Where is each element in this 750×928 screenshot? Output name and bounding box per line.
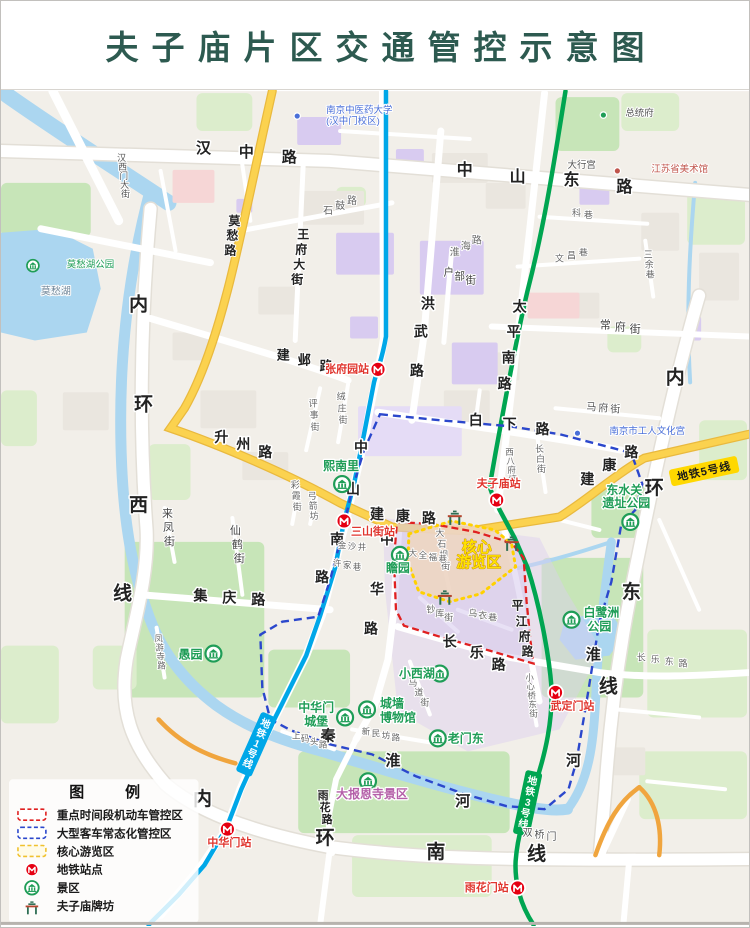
road-label: 路 [536,421,551,437]
scenic-icon-col [370,781,372,785]
road-label: 福 [429,552,437,562]
road-label: 街 [630,321,641,335]
scenic-icon-col [31,887,32,890]
road-label: 来 [162,507,173,520]
archway-cap [443,590,447,592]
metro-station-icon [371,362,386,377]
poi-label: (汉中门校区) [326,115,380,127]
metro-station-icon [26,863,39,876]
road-label: 路 [347,194,357,207]
road-label: 街 [537,463,546,474]
scenic-spot-icon [563,612,579,628]
poi-label: 莫愁湖公园 [67,259,114,271]
poi-label: 江苏省美术馆 [651,163,708,175]
road-label: 路 [251,592,266,608]
road-label: 华 [370,581,384,597]
scenic-label: 老门东 [448,730,484,745]
archway-tier [441,593,449,595]
scenic-icon-base [567,623,577,624]
metro-station-icon [220,822,235,837]
archway-beam [26,906,39,908]
water-body [1,229,101,341]
scenic-label: 中华门 [298,699,334,714]
legend-zone-swatch [18,809,46,820]
metro-station-label: 武定门站 [551,698,595,712]
road-label: 路 [492,657,507,673]
road-label: 民 [372,728,380,738]
road-label: 衣 [478,610,487,621]
road-label: 库 [435,608,444,619]
road-label: 白 [469,412,483,428]
road-label: 白 [536,453,545,464]
road-label: 建 [277,347,290,362]
traffic-control-map: 地铁5号线地铁1号线地铁3号线汉中路中山东路内环西线内环东线内环南线洪武路太平南… [1,90,749,926]
road-label: 建 [580,471,594,487]
road-label: 建 [370,506,384,522]
metro-station-label: 中华门站 [207,835,251,849]
road-label: 坊 [310,510,319,521]
road-label: 评 [309,398,318,408]
scenic-icon-col [367,781,369,785]
core-zone-label: 游览区 [456,553,501,571]
road-label: 三 [644,250,653,260]
scenic-label: 遗址公园 [601,495,650,510]
road-label: 街 [339,414,348,425]
road-label: 路 [410,362,425,378]
scenic-icon-col [363,709,365,713]
road-label: 东 [563,170,579,189]
road-label: 大 [409,548,418,558]
scenic-icon-col [440,738,442,742]
archway-beam [438,595,452,597]
road-label: 事 [310,409,319,420]
road-label: 巷 [353,562,362,572]
road-label: 愁 [226,228,238,243]
city-block [486,183,526,209]
road-label: 路 [472,234,482,247]
archway-post [449,517,451,525]
scenic-icon-col [437,738,439,742]
park-area [1,390,37,446]
road-label: 内 [666,365,685,388]
scenic-icon-col [347,717,349,721]
archway-tier [451,513,459,515]
road-label: 仙 [230,524,241,537]
road-label: 平 [507,323,521,339]
road-label: 凤 [163,521,174,534]
road-label: 街 [420,696,429,707]
poi-dot-icon [294,113,300,119]
scenic-icon-col [571,619,573,623]
metro-station-label: 三山街站 [351,524,395,538]
scenic-label: 白鹭洲 [583,605,619,620]
road-label: 康 [602,457,617,473]
archway-post [515,543,517,551]
legend-item-label: 景区 [56,882,80,895]
scenic-icon-col [341,717,343,721]
road-label: 街 [234,551,245,565]
road-label: 街 [444,612,453,623]
legend-title: 例 [125,783,140,801]
scenic-icon-col [439,673,441,677]
road-label: 长 [443,634,457,650]
road-label: 洪 [421,296,435,312]
scenic-icon-base [28,891,36,892]
archway-post [448,597,450,605]
road-label: 中 [239,143,254,161]
legend-item: 重点时间段机动车管控区 [18,808,183,822]
road-label: 石 [323,206,333,217]
scenic-icon-col [369,709,371,713]
poi-label: 南京中医药大学 [326,104,392,116]
road-label: 井 [358,542,366,552]
scenic-icon-col [209,653,211,657]
road-label: 乌 [468,608,477,619]
poi-dot-icon [600,112,606,118]
scenic-icon-col [34,887,35,890]
scenic-label: 城墙 [380,695,404,710]
road-label: 许 [333,558,342,568]
archway-post [35,907,37,914]
park-area [1,646,59,724]
scenic-icon-base [337,488,347,489]
road-label: 鼓 [335,199,345,212]
scenic-icon-col [216,653,218,657]
poi-dot-icon [574,430,580,436]
road-label: 路 [392,732,401,742]
scenic-icon-base [395,558,405,559]
road-label: 内 [129,293,148,316]
archway-cap [510,537,514,539]
city-block [200,390,256,428]
road-label: 双 [523,827,533,839]
road-label: 环 [134,394,153,415]
road-label: 马 [586,401,596,413]
road-label: 街 [529,708,538,718]
poi-label: 总统府 [625,107,654,119]
road-label: 长 [637,652,646,663]
legend-item-label: 大型客车常态化管控区 [57,826,172,840]
road-label: 环 [316,828,335,849]
road-label: 路 [224,243,237,258]
road-label: 路 [319,739,328,749]
legend-item-label: 核心游览区 [57,844,115,858]
road-label: 绒 [337,390,346,401]
road-label: 中 [457,160,473,179]
road-label: 全 [419,550,428,560]
road-label: 庆 [221,590,236,606]
road-label: 巷 [488,613,497,623]
road-label: 中 [354,439,368,455]
road-label: 东 [622,580,641,603]
scenic-icon-col [626,521,628,525]
road-label: 淮 [385,751,400,769]
metro-station-label: 雨花门站 [465,880,509,894]
road-label: 府 [598,401,608,414]
scenic-icon-col [344,484,346,488]
road-label: 大 [435,527,444,538]
road-label: 路 [616,177,633,196]
road-label: 升 [214,429,228,445]
scenic-icon-base [29,268,36,269]
archway-post [27,907,29,914]
scenic-icon-col [213,653,215,657]
metro-station-icon [489,493,504,508]
road-label: 线 [527,842,546,865]
scenic-icon-col [344,717,346,721]
road-label: 巷 [439,554,448,564]
road-label: 邺 [298,352,311,367]
road-label: 街 [610,402,620,415]
road-label: 街 [164,534,175,548]
road-label: 文 [555,253,564,264]
road-label: 太 [512,299,528,315]
scenic-label: 愚园 [179,648,203,662]
road-label: 路 [364,621,379,637]
scenic-icon-base [209,657,219,658]
archway-beam [448,515,462,517]
bottom-edge [1,922,749,925]
road-label: 彩 [291,480,300,490]
road-label: 街 [466,274,477,287]
scenic-label: 小西湖 [399,666,435,681]
title-bar: 夫子庙片区交通管控示意图 [1,1,749,89]
scenic-label: 熙南里 [323,458,359,473]
scenic-icon-base [340,721,350,722]
scenic-icon-col [436,673,438,677]
legend-zone-swatch [18,845,46,856]
road-label: 山 [510,168,526,186]
road-label: 南 [426,841,445,863]
road-label: 雨 [318,789,329,802]
metro-station-icon [548,685,563,700]
road-label: 王 [297,228,309,242]
road-label: 花 [320,800,331,814]
road-label: 头 [310,736,318,746]
scenic-label: 瞻园 [386,560,410,575]
road-label: 西 [129,495,148,516]
scenic-icon-col [633,521,635,525]
road-label: 东 [665,656,674,667]
road-label: 部 [455,270,465,283]
archway-tier [28,903,35,905]
road-label: 大 [293,257,305,272]
road-label: 淮 [586,646,601,664]
scenic-icon-col [629,521,631,525]
scenic-icon-col [366,709,368,713]
road-label: 河 [566,751,581,769]
road-label: 南 [502,349,516,365]
commercial-block [452,342,498,384]
archway-beam [505,541,519,543]
road-label: 府 [295,242,307,257]
poi-label: 莫愁湖 [41,285,71,298]
legend: 图例重点时间段机动车管控区大型客车常态化管控区核心游览区地铁站点景区夫子庙牌坊 [9,779,198,923]
road-label: 河 [455,792,470,810]
road-label: 康 [396,508,411,524]
road-label: 府 [615,319,626,333]
city-block [258,287,298,315]
legend-item: 核心游览区 [18,844,115,858]
archway-tier [508,539,516,541]
scenic-icon-col [338,484,340,488]
road-label: 线 [113,582,132,605]
legend-item: 大型客车常态化管控区 [18,826,172,840]
road-label: 庄 [338,402,347,413]
scenic-icon-base [362,713,372,714]
road-label: 线 [599,675,618,698]
metro-station-label: 夫子庙站 [477,476,521,490]
scenic-spot-icon [622,514,638,530]
road-label: 海 [461,240,471,253]
road-label: 新 [362,726,371,736]
scenic-spot-icon [334,476,350,492]
road-label: 路 [282,148,298,166]
road-label: 州 [235,436,250,452]
road-label: 石 [437,539,446,549]
scenic-icon-col [567,619,569,623]
scenic-label: 大报恩寺景区 [336,786,408,801]
road-label: 金 [338,540,347,550]
road-label: 武 [414,323,428,339]
road-label: 莫 [228,213,240,228]
scenic-label: 公园 [587,620,611,634]
hospital-block [173,170,215,203]
scenic-icon-col [30,265,31,268]
road-label: 巷 [646,270,655,280]
road-label: 淮 [450,247,460,259]
scenic-spot-icon [359,701,375,717]
road-label: 常 [600,318,611,331]
road-label: 户 [444,266,454,279]
road-label: 路 [157,661,166,671]
road-label: 路 [258,444,273,460]
metro-station-icon [510,881,525,896]
scenic-icon-col [35,265,36,268]
park-area [196,93,252,131]
road-label: 路 [315,569,330,585]
scenic-icon-base [363,785,373,786]
scenic-icon-col [396,554,398,558]
road-label: 钞 [426,604,435,615]
road-label: 路 [679,658,688,669]
road-label: 沙 [348,541,357,551]
road-label: 昌 [567,251,576,261]
scenic-label: 博物馆 [380,709,416,724]
road-label: 乐 [651,654,660,665]
road-label: 道 [414,686,423,697]
road-label: 府 [519,629,531,644]
archway-post [458,517,460,525]
road-label: 路 [624,444,639,460]
scenic-icon-col [29,887,30,890]
road-label: 长 [535,443,544,454]
road-label: 平 [512,599,524,613]
road-label: 科 [572,207,581,218]
commercial-block [350,317,378,339]
scenic-label: 东水关 [606,482,642,497]
poi-label: 南京市工人文化宫 [609,425,685,437]
road-label: 桥 [535,829,545,841]
scenic-icon-base [435,677,445,678]
legend-item-label: 重点时间段机动车管控区 [57,808,184,822]
road-label: 路 [498,375,513,391]
road-label: 街 [293,501,302,512]
archway-post [506,543,508,551]
road-label: 鹤 [232,537,243,551]
legend-item-label: 夫子庙牌坊 [57,899,115,913]
hospital-block [528,293,580,319]
scenic-icon-base [626,526,636,527]
scenic-icon-col [32,265,33,268]
scenic-spot-icon [430,730,446,746]
scenic-spot-icon [337,709,353,725]
road-label: 街 [121,188,130,199]
legend-item-label: 地铁站点 [57,863,103,877]
poi-dot-icon [614,168,620,174]
road-label: 江 [516,614,528,629]
road-label: 街 [290,272,303,287]
screenshot-frame: 夫子庙片区交通管控示意图 地铁5号线地铁1号线地铁3号线汉中路中山东路内环西线内… [0,0,750,928]
road-label: 余 [645,259,654,270]
scenic-icon-col [402,554,404,558]
page-title: 夫子庙片区交通管控示意图 [93,21,658,69]
road-label: 巷 [579,248,588,258]
scenic-label: 城堡 [304,713,328,728]
road-label: 坊 [382,730,391,740]
road-label: 门 [547,830,557,843]
scenic-icon-col [574,619,576,623]
road-label: 路 [522,644,535,659]
road-label: 霞 [292,491,301,501]
scenic-icon-col [434,738,436,742]
map-container: 地铁5号线地铁1号线地铁3号线汉中路中山东路内环西线内环东线内环南线洪武路太平南… [1,89,749,926]
park-area [149,444,191,500]
road-label: 汉 [196,140,212,157]
city-block [63,392,109,430]
archway-cap [30,901,33,902]
scenic-icon-col [341,484,343,488]
road-label: 路 [322,812,334,826]
scenic-spot-icon [25,881,39,895]
road-label: 乐 [470,645,484,661]
road-label: 码 [301,733,309,743]
road-label: 箭 [309,500,318,511]
poi-label: 大行宫 [567,159,595,171]
road-label: 集 [192,588,208,604]
road-label: 家 [343,560,352,570]
scenic-icon-col [364,781,366,785]
metro-station-icon [337,513,352,528]
scenic-icon-base [433,742,443,743]
metro-station-label: 张府园站 [325,361,369,375]
archway-cap [453,511,457,513]
scenic-icon-col [442,673,444,677]
archway-post [439,597,441,605]
road-label: 上 [292,730,301,740]
road-label: 弓 [308,491,317,501]
scenic-icon-col [399,554,401,558]
scenic-spot-icon [27,260,39,272]
road-label: 街 [311,421,320,432]
scenic-spot-icon [205,646,221,662]
legend-title: 图 [69,784,84,801]
road-label: 下 [503,416,517,432]
legend-zone-swatch [18,827,46,838]
road-label: 路 [422,510,437,526]
road-label: 巷 [584,210,593,220]
